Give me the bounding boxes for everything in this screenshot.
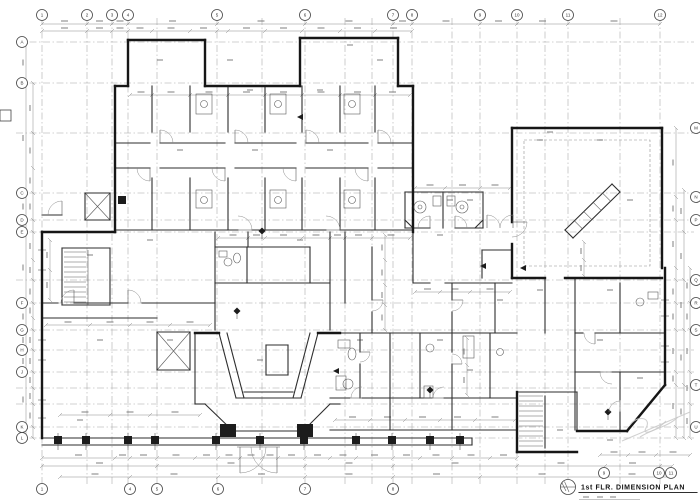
door-arc	[306, 130, 319, 143]
door-arc	[584, 333, 595, 344]
door-arc	[212, 168, 225, 181]
drawing-sheet: 12345678910111214567891011ABCDEFGHJKLMNP…	[0, 0, 700, 500]
sheet-edge-tab	[0, 110, 11, 121]
door-arc	[512, 222, 527, 237]
section-diamond	[234, 308, 241, 315]
grid-bubble-label: A	[20, 40, 23, 45]
grid-bubble-label: E	[20, 230, 23, 235]
door-arc	[355, 168, 368, 181]
door-arc	[378, 130, 391, 143]
door-arc	[600, 372, 612, 384]
grid-bubble-label: G	[20, 328, 24, 333]
grid-lines	[16, 18, 694, 484]
door-arc	[137, 168, 150, 181]
section-diamond	[427, 387, 434, 394]
door-arc	[452, 300, 463, 311]
grid-bubble-label: Q	[694, 278, 698, 283]
door-arc	[455, 216, 467, 228]
grid-bubble-label: 10	[656, 471, 662, 476]
dimension-strings	[22, 20, 692, 479]
door-arc	[418, 216, 430, 228]
door-arc	[251, 447, 277, 473]
grid-bubble-label: 11	[669, 471, 674, 476]
marker-triangle	[520, 265, 526, 271]
detail-lines	[38, 140, 669, 450]
door-arc	[360, 352, 370, 362]
exterior-walls	[42, 38, 665, 452]
grid-bubble-label: P	[694, 218, 697, 223]
grid-bubbles: 12345678910111214567891011ABCDEFGHJKLMNP…	[17, 10, 700, 495]
grid-bubble-label: 11	[566, 13, 571, 18]
grid-bubble-label: K	[20, 425, 23, 430]
grid-bubble-label: J	[21, 370, 23, 375]
drawing-title: 1st FLR. DIMENSION PLAN	[581, 485, 685, 492]
door-arc	[452, 354, 462, 364]
floor-plan-svg: 12345678910111214567891011ABCDEFGHJKLMNP…	[0, 0, 700, 500]
door-arc	[235, 130, 248, 143]
door-arc	[609, 401, 620, 412]
door-swings	[48, 130, 620, 473]
grid-bubble-label: B	[20, 81, 23, 86]
grid-bubble-label: 10	[514, 13, 520, 18]
door-arc	[487, 215, 500, 228]
marker-triangle	[333, 368, 339, 374]
door-arc	[372, 300, 383, 311]
grid-bubble-label: H	[20, 348, 23, 353]
door-arc	[128, 290, 141, 303]
grid-bubble-label: F	[21, 301, 24, 306]
door-arc	[283, 168, 296, 181]
door-arc	[48, 201, 62, 215]
door-arc	[433, 387, 444, 398]
door-arc	[326, 216, 340, 230]
section-diamond	[605, 409, 612, 416]
grid-bubble-label: N	[694, 195, 697, 200]
marker-triangle	[297, 114, 303, 120]
grid-bubble-label: U	[694, 425, 697, 430]
grid-bubble-label: T	[695, 383, 698, 388]
door-arc	[238, 216, 252, 230]
grid-bubble-label: 12	[657, 13, 663, 18]
title-block: 1st FLR. DIMENSION PLAN	[561, 480, 698, 500]
marker-triangle	[480, 263, 486, 269]
door-arc	[160, 130, 173, 143]
grid-bubble-label: M	[694, 126, 698, 131]
grid-bubble-label: S	[694, 328, 697, 333]
